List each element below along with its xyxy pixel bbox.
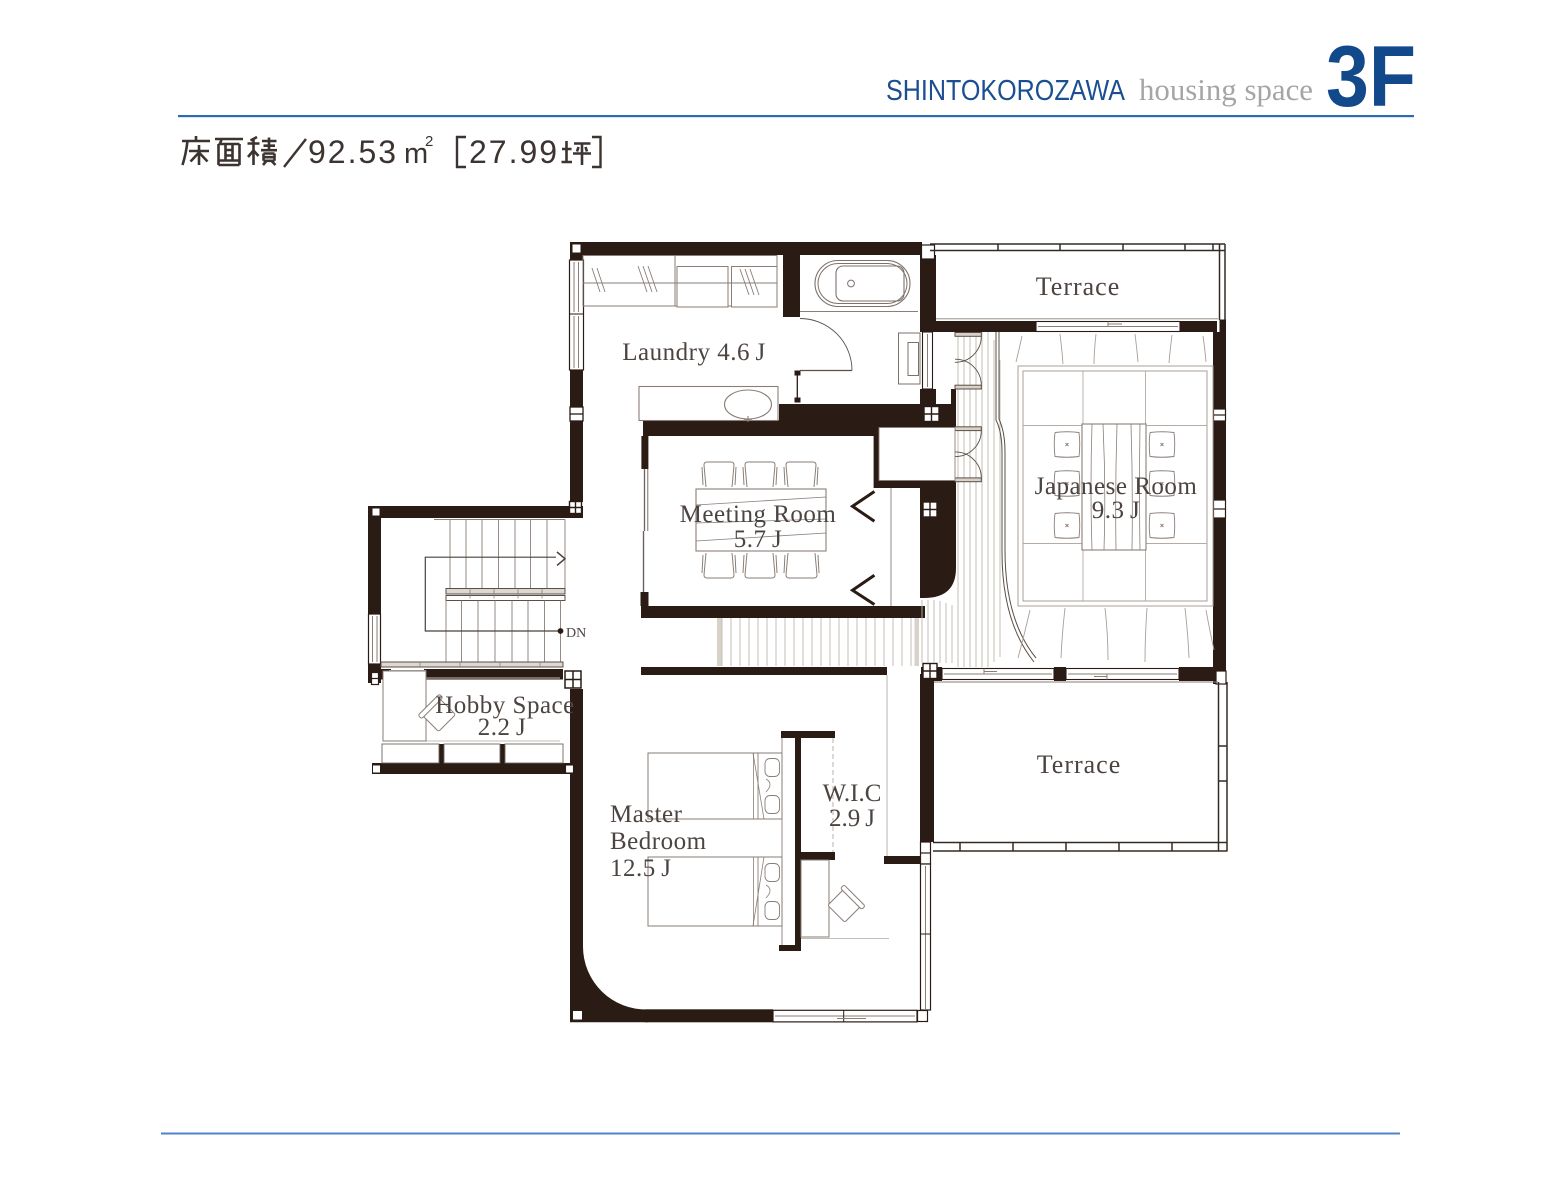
svg-text:92.53: 92.53 (308, 134, 398, 170)
svg-text:DN: DN (566, 626, 586, 641)
svg-text:Bedroom: Bedroom (610, 828, 707, 855)
svg-text:12.5 J: 12.5 J (610, 855, 671, 882)
svg-text:SHINTOKOROZAWA: SHINTOKOROZAWA (886, 75, 1126, 107)
svg-text:27.99: 27.99 (469, 134, 559, 170)
svg-text:5.7 J: 5.7 J (734, 526, 782, 553)
svg-text:Japanese Room: Japanese Room (1035, 473, 1198, 500)
svg-text:housing space: housing space (1139, 72, 1313, 107)
svg-text:Master: Master (610, 801, 683, 828)
svg-text:Terrace: Terrace (1036, 272, 1121, 301)
svg-text:W.I.C: W.I.C (823, 780, 882, 807)
svg-text:2.9 J: 2.9 J (829, 805, 875, 832)
svg-text:2: 2 (425, 133, 433, 150)
svg-text:Meeting Room: Meeting Room (680, 501, 837, 528)
svg-text:Terrace: Terrace (1037, 750, 1122, 779)
svg-text:9.3 J: 9.3 J (1092, 497, 1140, 524)
svg-text:3F: 3F (1326, 29, 1416, 125)
svg-text:2.2 J: 2.2 J (478, 714, 526, 741)
svg-text:Laundry 4.6 J: Laundry 4.6 J (622, 339, 765, 366)
